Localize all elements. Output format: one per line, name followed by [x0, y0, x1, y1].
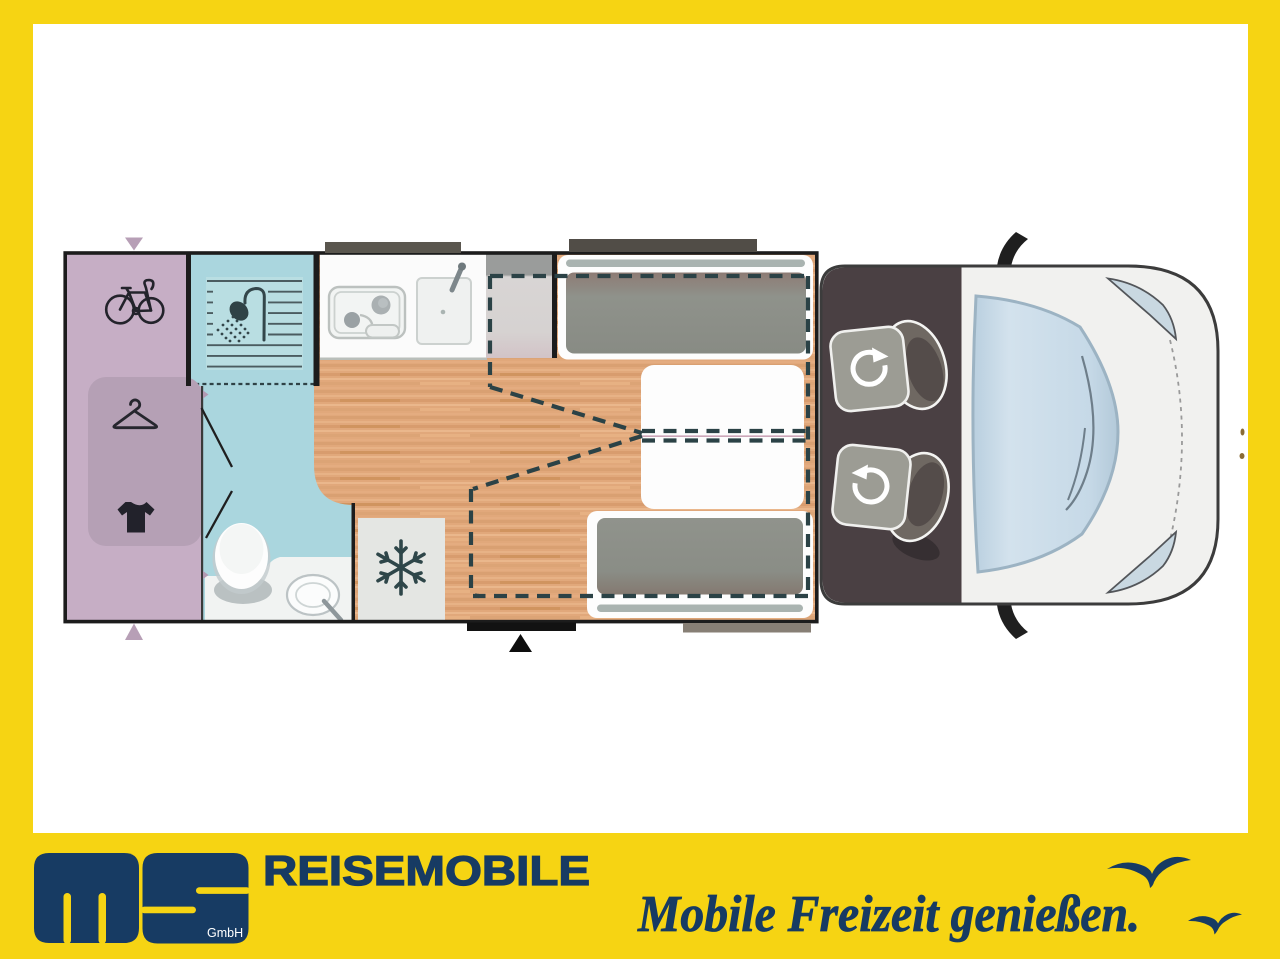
svg-text:GmbH: GmbH [207, 926, 243, 940]
svg-text:REISEMOBILE: REISEMOBILE [263, 847, 590, 894]
svg-text:Mobile Freizeit genießen.: Mobile Freizeit genießen. [637, 886, 1140, 943]
